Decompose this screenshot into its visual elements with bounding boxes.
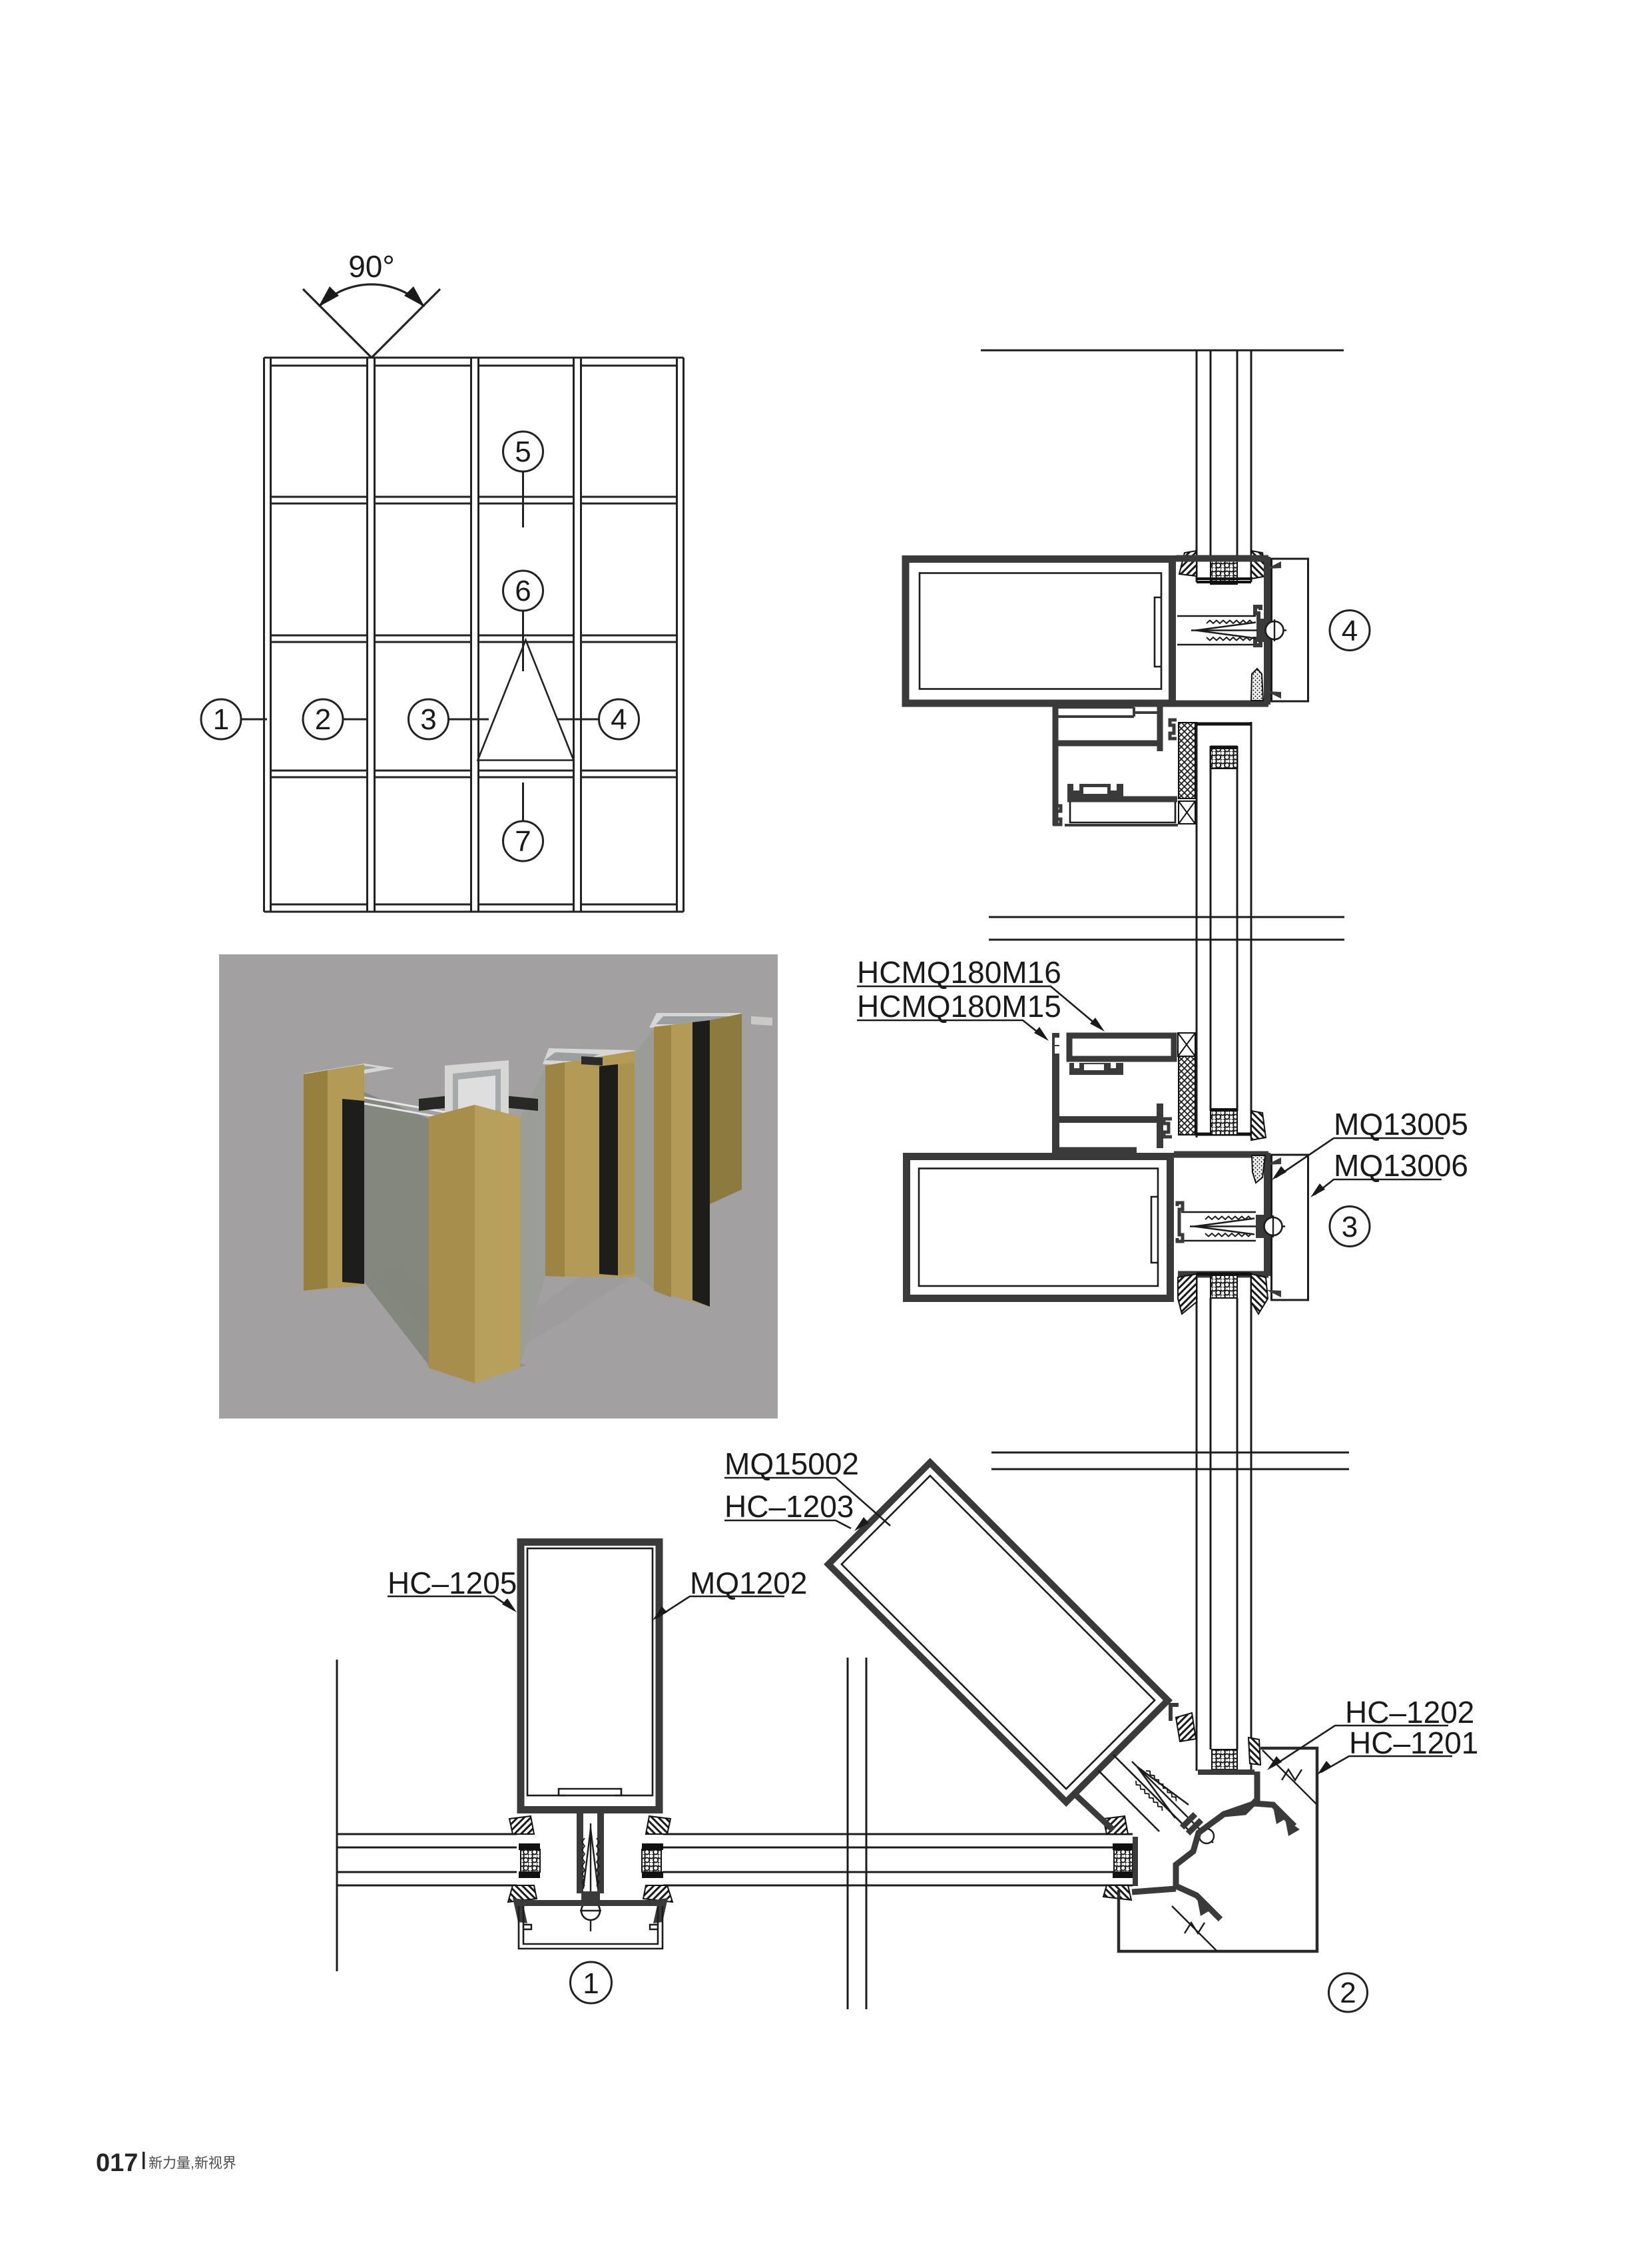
svg-text:MQ15002: MQ15002 (724, 1446, 859, 1481)
svg-text:017: 017 (96, 2149, 138, 2177)
svg-text:HCMQ180M16: HCMQ180M16 (857, 955, 1061, 990)
svg-text:3: 3 (420, 703, 436, 736)
svg-text:4: 4 (1342, 615, 1358, 647)
svg-text:HC–1201: HC–1201 (1349, 1726, 1478, 1760)
svg-text:MQ13006: MQ13006 (1334, 1148, 1468, 1183)
svg-text:5: 5 (515, 436, 531, 468)
svg-text:2: 2 (315, 703, 331, 736)
svg-text:1: 1 (213, 703, 229, 736)
svg-text:90°: 90° (348, 249, 395, 284)
svg-text:7: 7 (515, 825, 531, 858)
svg-text:4: 4 (611, 703, 627, 736)
svg-text:MQ13005: MQ13005 (1334, 1107, 1468, 1141)
svg-text:1: 1 (583, 1967, 599, 2000)
svg-text:HCMQ180M15: HCMQ180M15 (857, 989, 1061, 1024)
svg-text:6: 6 (515, 575, 531, 607)
svg-text:新力量,新视界: 新力量,新视界 (148, 2156, 236, 2171)
svg-text:HC–1202: HC–1202 (1345, 1695, 1474, 1730)
svg-text:HC–1203: HC–1203 (724, 1489, 854, 1524)
svg-text:MQ1202: MQ1202 (690, 1566, 807, 1600)
svg-text:3: 3 (1342, 1211, 1358, 1243)
svg-text:2: 2 (1340, 1977, 1356, 2009)
svg-text:HC–1205: HC–1205 (388, 1566, 517, 1600)
